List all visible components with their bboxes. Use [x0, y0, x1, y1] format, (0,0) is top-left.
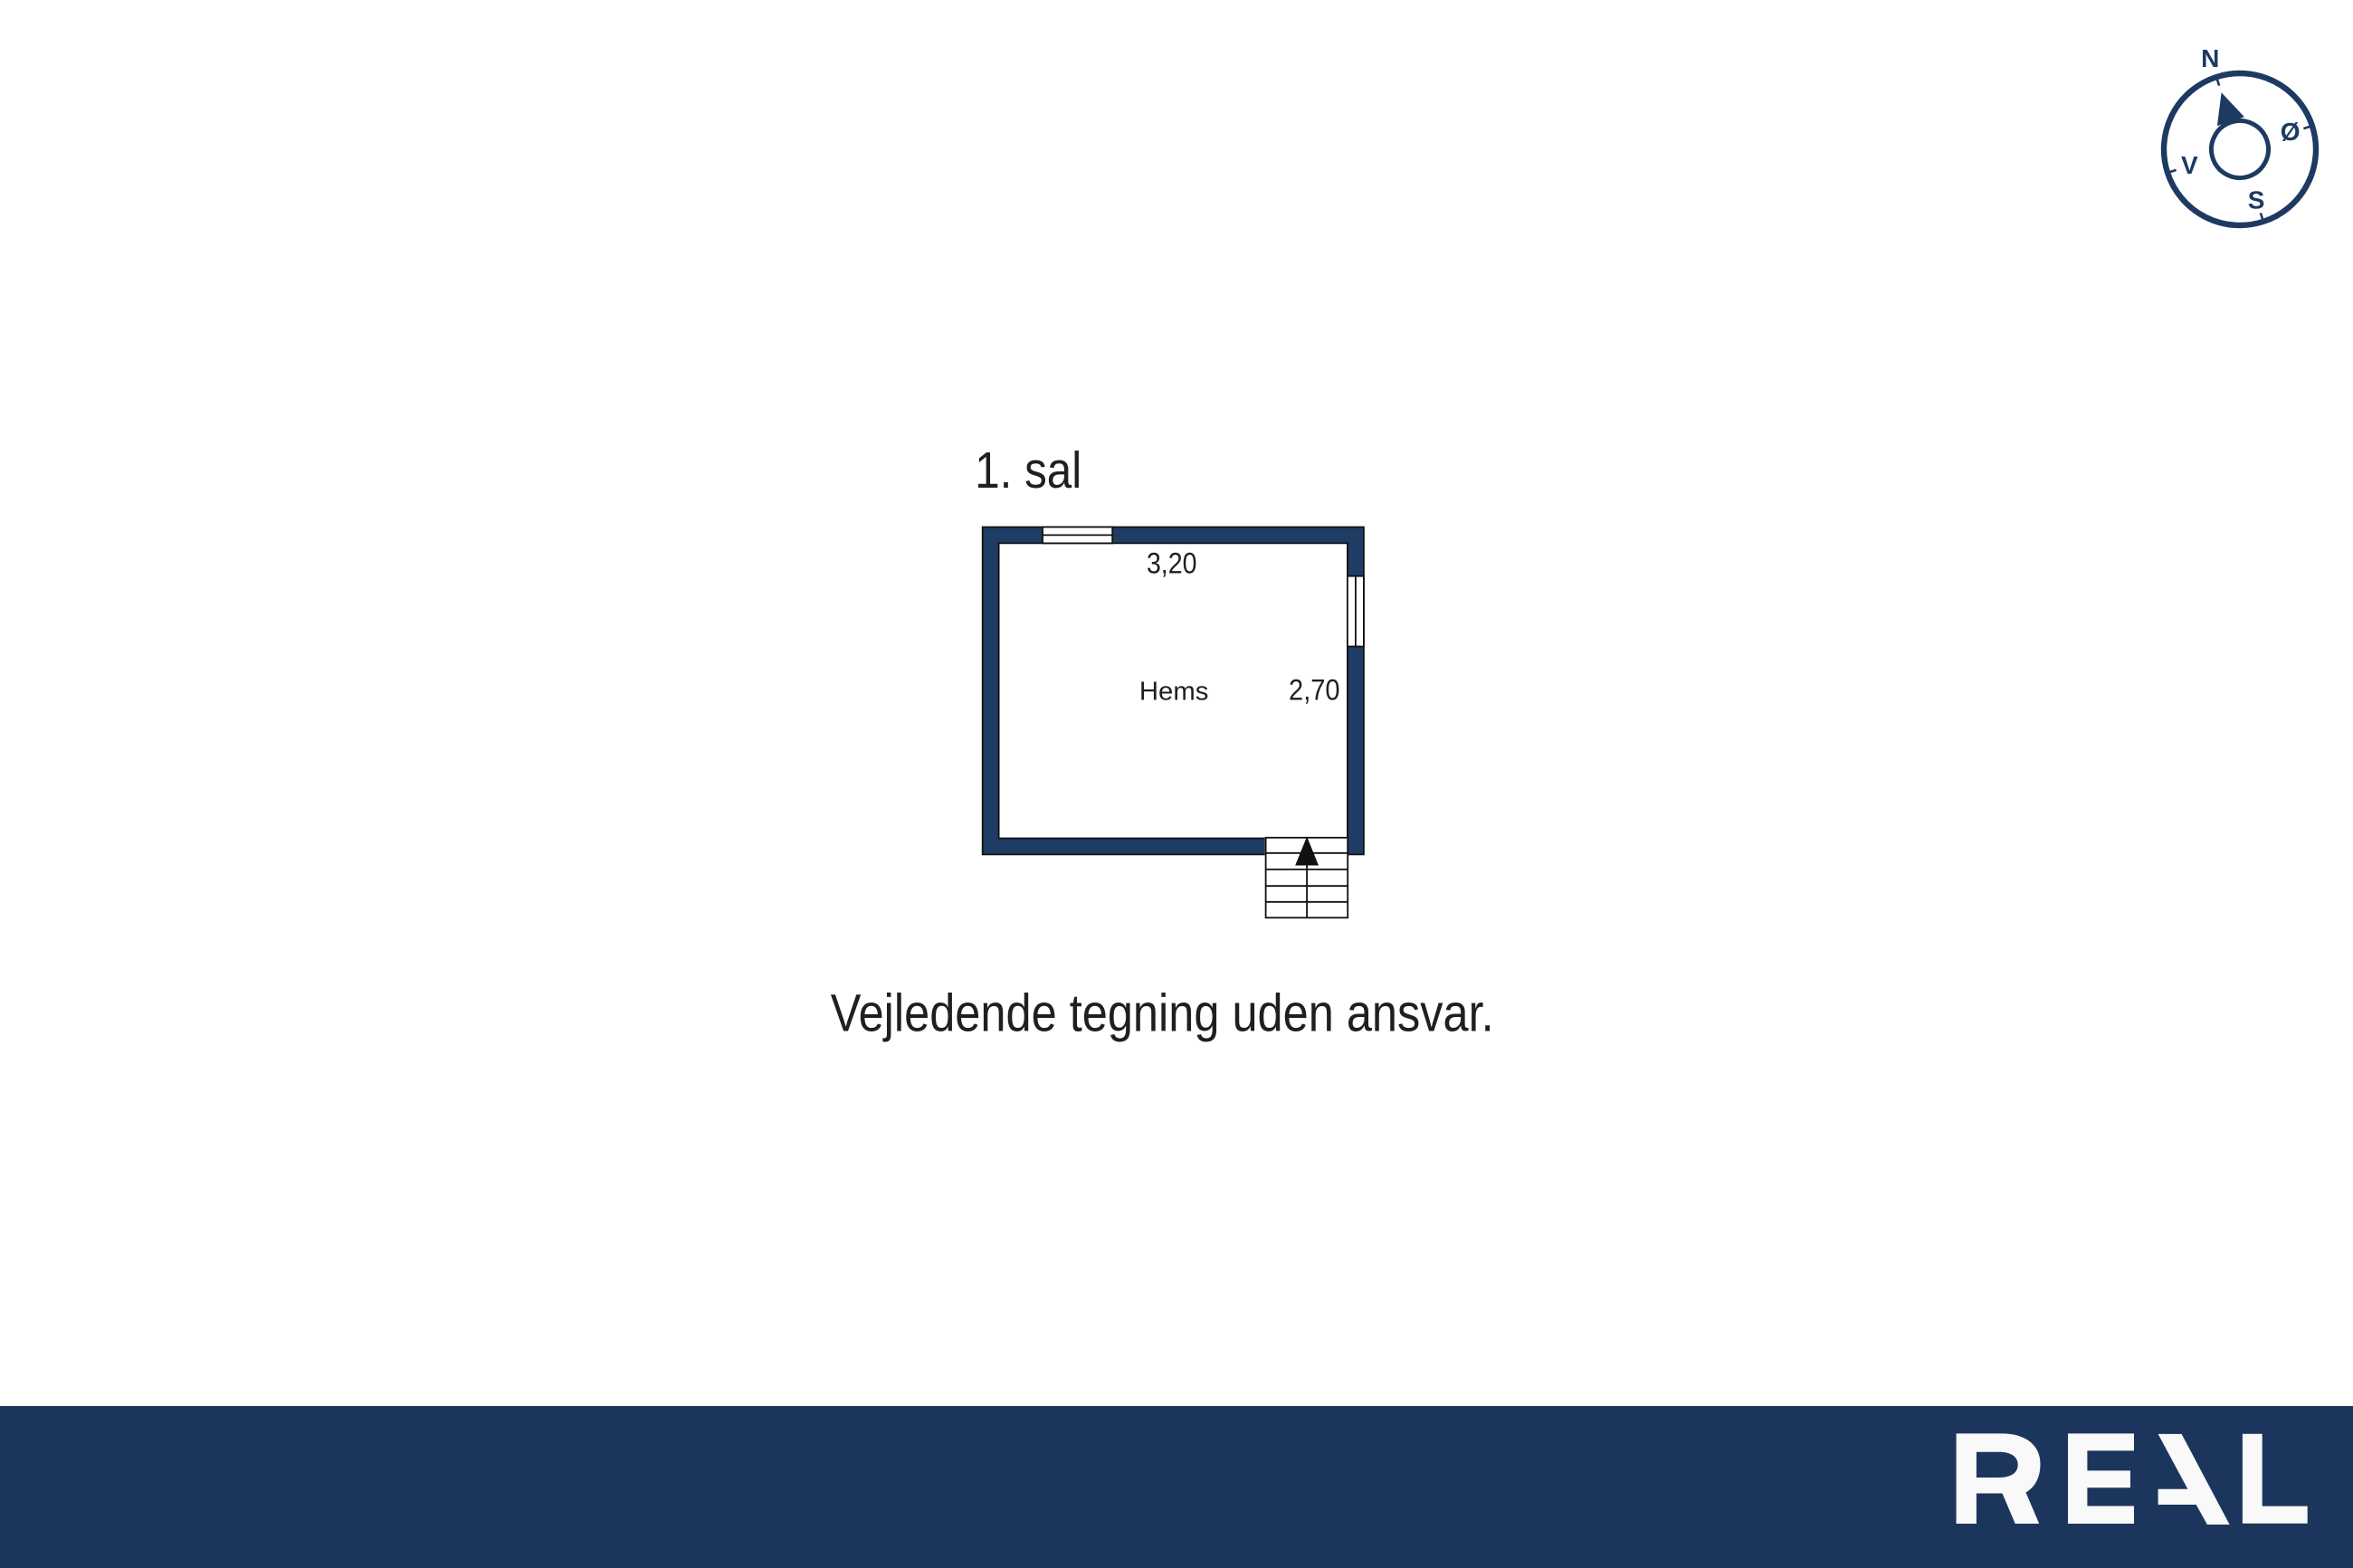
svg-text:1. sal: 1. sal [975, 442, 1081, 499]
svg-text:Vejledende tegning uden ansvar: Vejledende tegning uden ansvar. [831, 984, 1494, 1042]
svg-text:Ø: Ø [2281, 118, 2301, 146]
svg-text:S: S [2248, 186, 2265, 214]
svg-text:V: V [2181, 151, 2198, 179]
svg-text:2,70: 2,70 [1289, 674, 1340, 707]
svg-text:N: N [2201, 44, 2219, 72]
svg-text:Hems: Hems [1139, 678, 1209, 707]
svg-text:3,20: 3,20 [1147, 547, 1197, 580]
